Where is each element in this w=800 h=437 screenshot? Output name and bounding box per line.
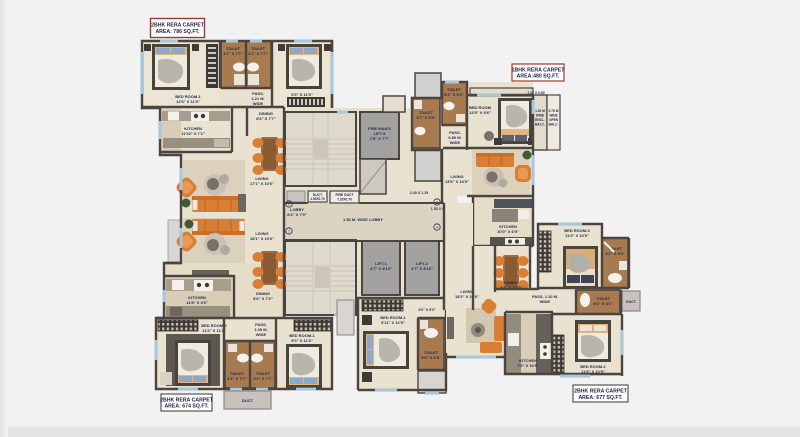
svg-text:10'0" X 6'9": 10'0" X 6'9" xyxy=(497,229,519,234)
svg-text:11'0" X 10'0": 11'0" X 10'0" xyxy=(565,233,589,238)
svg-text:7'8" X 7'7": 7'8" X 7'7" xyxy=(370,136,390,141)
svg-text:1.00X0.70: 1.00X0.70 xyxy=(310,197,325,201)
svg-text:1.20 M: 1.20 M xyxy=(535,109,545,113)
svg-text:DUCT: DUCT xyxy=(242,398,254,403)
svg-text:WIDE: WIDE xyxy=(256,332,267,337)
svg-text:9'0" X 11'0": 9'0" X 11'0" xyxy=(291,92,313,97)
svg-text:FIRE DUCT: FIRE DUCT xyxy=(335,193,354,197)
svg-text:11'2" X 11'2": 11'2" X 11'2" xyxy=(202,328,226,333)
svg-text:0.75 M: 0.75 M xyxy=(549,109,559,113)
svg-text:4'1" X 7'7": 4'1" X 7'7" xyxy=(223,51,243,56)
svg-text:4'7" X 8'10": 4'7" X 8'10" xyxy=(370,266,392,271)
svg-text:4'7" X 8'10": 4'7" X 8'10" xyxy=(411,266,433,271)
svg-text:1: 1 xyxy=(288,230,290,234)
svg-text:AREA: 677 SQ.FT.: AREA: 677 SQ.FT. xyxy=(578,395,623,401)
svg-text:BALC.: BALC. xyxy=(549,123,559,127)
svg-text:AREA: 674 SQ.FT.: AREA: 674 SQ.FT. xyxy=(164,404,209,410)
svg-text:1.50 M. WIDE LOBBY: 1.50 M. WIDE LOBBY xyxy=(343,217,383,222)
svg-text:4'1" X 8'0": 4'1" X 8'0" xyxy=(605,251,625,256)
svg-text:DUCT: DUCT xyxy=(626,300,637,304)
svg-text:8'0" X 4'1": 8'0" X 4'1" xyxy=(593,301,613,306)
svg-text:4'0" X 5'3": 4'0" X 5'3" xyxy=(418,308,436,312)
svg-text:13'5" X 9'6": 13'5" X 9'6" xyxy=(469,110,491,115)
svg-text:WIDE: WIDE xyxy=(253,101,264,106)
svg-text:WIDE: WIDE xyxy=(549,114,557,118)
svg-text:WIDE: WIDE xyxy=(540,299,551,304)
svg-text:13'6" X 10'0": 13'6" X 10'0" xyxy=(445,179,469,184)
svg-text:2.30 X 1.15: 2.30 X 1.15 xyxy=(410,191,428,195)
svg-text:ENCL.: ENCL. xyxy=(535,118,545,122)
svg-text:8'1" X 6'0": 8'1" X 6'0" xyxy=(444,92,464,97)
svg-text:AREA:480 SQ.FT.: AREA:480 SQ.FT. xyxy=(517,74,560,80)
svg-text:9'0" X 11'6": 9'0" X 11'6" xyxy=(291,338,313,343)
svg-text:18'2" X 10'6": 18'2" X 10'6" xyxy=(455,294,479,299)
svg-text:12'6" X 11'0": 12'6" X 11'0" xyxy=(176,99,200,104)
svg-text:OPEN: OPEN xyxy=(549,118,559,122)
svg-text:WIDE: WIDE xyxy=(536,114,544,118)
svg-text:8'4" X 7'9": 8'4" X 7'9" xyxy=(287,212,307,217)
svg-text:8'6" X 7'2": 8'6" X 7'2" xyxy=(253,296,273,301)
svg-text:WIDE: WIDE xyxy=(450,140,461,145)
svg-text:4: 4 xyxy=(436,226,438,230)
svg-text:2BHK RERA CARPET: 2BHK RERA CARPET xyxy=(574,389,628,395)
svg-text:7'2" X 10'0": 7'2" X 10'0" xyxy=(517,363,539,368)
svg-text:11'8" X 4'6": 11'8" X 4'6" xyxy=(186,300,208,305)
svg-text:4'1" X 7'7": 4'1" X 7'7" xyxy=(253,376,273,381)
svg-text:BALC.: BALC. xyxy=(535,123,545,127)
svg-text:3'7" X 6'0": 3'7" X 6'0" xyxy=(416,115,436,120)
svg-text:2BHK RERA CARPET: 2BHK RERA CARPET xyxy=(151,23,205,29)
svg-text:5'0" X 6'8": 5'0" X 6'8" xyxy=(421,355,441,360)
svg-text:AREA: 786 SQ.FT.: AREA: 786 SQ.FT. xyxy=(155,29,200,35)
svg-text:4'1" X 7'7": 4'1" X 7'7" xyxy=(227,376,247,381)
svg-text:4'1" X 7'7": 4'1" X 7'7" xyxy=(248,51,268,56)
svg-text:9'11" X 12'9": 9'11" X 12'9" xyxy=(381,320,405,325)
svg-text:18'1" X 10'6": 18'1" X 10'6" xyxy=(250,236,274,241)
svg-text:8'6" X 7'7": 8'6" X 7'7" xyxy=(256,116,276,121)
svg-text:11'10" X 7'1": 11'10" X 7'1" xyxy=(181,131,205,136)
svg-text:7.20X0.70: 7.20X0.70 xyxy=(337,198,352,202)
svg-text:17'1" X 10'6": 17'1" X 10'6" xyxy=(250,181,274,186)
